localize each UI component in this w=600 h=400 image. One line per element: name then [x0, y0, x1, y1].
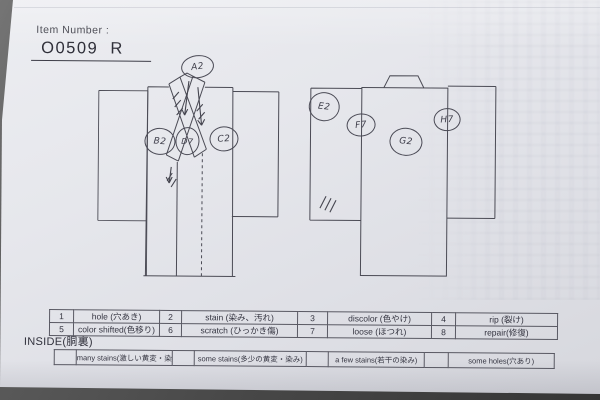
annotation-text-f7: F7	[355, 120, 368, 131]
legend-num: 4	[432, 313, 456, 326]
inside-row: many stains(激しい黄変・染み) some stains(多少の黄変・…	[54, 350, 554, 369]
legend-label: discolor (色やけ)	[328, 312, 432, 326]
inside-section-title: INSIDE(胴裏)	[24, 333, 93, 350]
inside-option-label: a few stains(若干の染み)	[328, 352, 424, 368]
condition-legend-table: 1 hole (穴あき) 2 stain (染み、汚れ) 3 discolor …	[49, 309, 558, 340]
checkbox-cell	[306, 352, 328, 367]
paper-sheet: Item Number : O0509 R	[0, 0, 600, 400]
inside-option-label: some holes(穴あり)	[448, 353, 554, 369]
photo-frame: Item Number : O0509 R	[0, 0, 600, 400]
legend-label: repair(修復)	[455, 326, 557, 340]
legend-label: loose (ほつれ)	[327, 325, 431, 339]
checkbox-cell	[424, 352, 448, 367]
checkbox-cell	[172, 351, 194, 366]
legend-num: 7	[297, 324, 327, 337]
kimono-front-diagram	[97, 72, 279, 276]
annotation-text-h7: H7	[440, 114, 454, 125]
annotation-text-b2: B2	[153, 136, 167, 147]
legend-label: hole (穴あき)	[74, 310, 160, 324]
legend-num: 6	[159, 323, 181, 336]
inside-option-label: some stains(多少の黄変・染み)	[194, 351, 306, 367]
annotation-text-c2: C2	[217, 134, 231, 145]
legend-num: 1	[50, 310, 74, 323]
annotation-text-e2: E2	[317, 101, 330, 112]
legend-num: 2	[160, 310, 182, 323]
annotation-text-g2: G2	[399, 136, 414, 147]
inside-option-label: many stains(激しい黄変・染み)	[76, 350, 172, 366]
legend-label: stain (染み、汚れ)	[182, 311, 298, 325]
checkbox-cell	[54, 350, 76, 365]
legend-num: 8	[431, 326, 455, 339]
back-pen-marks	[320, 196, 336, 212]
annotation-text-d7: D7	[181, 136, 194, 146]
annotation-text-a2: A2	[190, 61, 204, 73]
legend-label: scratch (ひっかき傷)	[181, 324, 297, 338]
legend-num: 3	[298, 311, 328, 324]
legend-label: rip (裂け)	[456, 313, 558, 327]
